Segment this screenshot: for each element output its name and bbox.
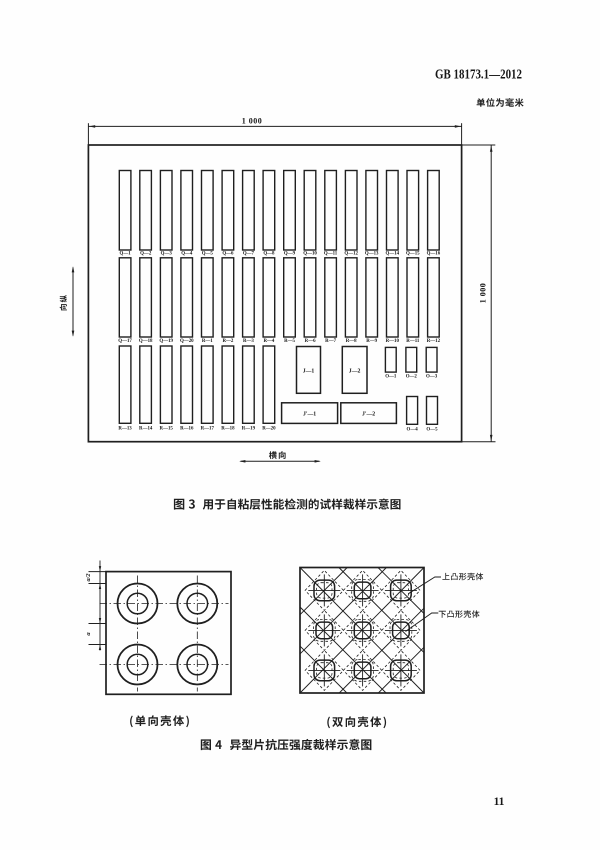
- svg-text:Q—1: Q—1: [120, 252, 132, 257]
- svg-text:Q—7: Q—7: [243, 252, 255, 257]
- svg-text:R—2: R—2: [222, 339, 233, 344]
- svg-text:R—5: R—5: [284, 339, 295, 344]
- svg-text:11: 11: [494, 796, 505, 808]
- svg-text:R—11: R—11: [406, 339, 420, 344]
- svg-text:R—20: R—20: [262, 426, 276, 431]
- svg-text:Q—10: Q—10: [303, 252, 317, 257]
- svg-text:Q—3: Q—3: [161, 252, 173, 257]
- svg-text:R—4: R—4: [263, 339, 274, 344]
- svg-text:Q—19: Q—19: [159, 339, 173, 344]
- svg-text:R—3: R—3: [243, 339, 254, 344]
- svg-text:Q—18: Q—18: [139, 339, 153, 344]
- svg-text:O—1: O—1: [385, 375, 397, 380]
- svg-text:J′—1: J′—1: [303, 411, 316, 417]
- svg-text:J—2: J—2: [349, 368, 361, 374]
- svg-text:O—2: O—2: [406, 375, 418, 380]
- svg-text:R—1: R—1: [202, 339, 213, 344]
- svg-text:Q—9: Q—9: [284, 252, 296, 257]
- svg-text:1 000: 1 000: [479, 283, 488, 304]
- svg-text:O—3: O—3: [426, 375, 438, 380]
- svg-text:1 000: 1 000: [242, 117, 263, 126]
- svg-text:R—12: R—12: [427, 339, 441, 344]
- svg-text:Q—4: Q—4: [181, 252, 193, 257]
- svg-text:R—16: R—16: [180, 426, 194, 431]
- svg-text:R—9: R—9: [366, 339, 377, 344]
- svg-text:Q—16: Q—16: [427, 252, 441, 257]
- svg-text:Q—5: Q—5: [202, 252, 214, 257]
- svg-text:Q—17: Q—17: [118, 339, 132, 344]
- svg-text:Q—14: Q—14: [386, 252, 400, 257]
- svg-text:R—18: R—18: [221, 426, 235, 431]
- svg-text:Q—15: Q—15: [406, 252, 420, 257]
- svg-text:R—10: R—10: [386, 339, 400, 344]
- svg-text:R—14: R—14: [139, 426, 153, 431]
- svg-text:Q—12: Q—12: [344, 252, 358, 257]
- svg-text:R—7: R—7: [325, 339, 336, 344]
- svg-text:R—17: R—17: [201, 426, 215, 431]
- svg-text:GB 18173.1—2012: GB 18173.1—2012: [435, 67, 522, 82]
- svg-text:Q—6: Q—6: [222, 252, 234, 257]
- svg-text:Q—13: Q—13: [365, 252, 379, 257]
- svg-text:J′—2: J′—2: [362, 411, 375, 417]
- svg-text:Q—20: Q—20: [180, 339, 194, 344]
- svg-text:R—13: R—13: [118, 426, 132, 431]
- svg-text:a/2: a/2: [85, 574, 92, 582]
- svg-text:Q—11: Q—11: [324, 252, 338, 257]
- svg-text:R—19: R—19: [242, 426, 256, 431]
- svg-text:O—5: O—5: [426, 428, 438, 433]
- svg-text:R—15: R—15: [160, 426, 174, 431]
- svg-text:J—1: J—1: [303, 368, 315, 374]
- svg-text:R—8: R—8: [346, 339, 357, 344]
- svg-text:Q—8: Q—8: [263, 252, 275, 257]
- svg-text:O—4: O—4: [407, 428, 419, 433]
- svg-text:R—6: R—6: [305, 339, 316, 344]
- svg-text:Q—2: Q—2: [140, 252, 152, 257]
- svg-text:a: a: [85, 632, 92, 636]
